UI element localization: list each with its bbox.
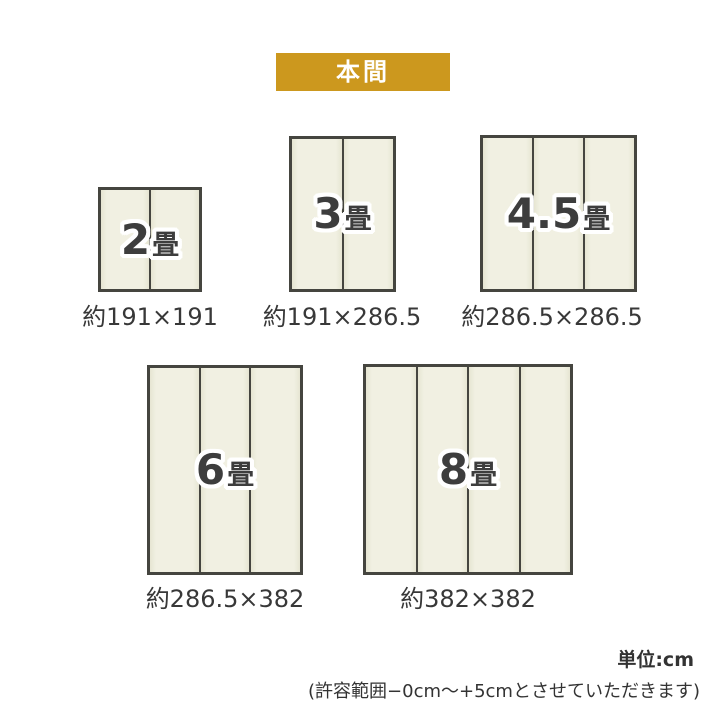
tatami-mat-6jo: 6畳: [147, 365, 303, 575]
dimension-label-3jo: 約191×286.5: [263, 304, 422, 330]
tatami-panel: [150, 368, 199, 572]
tatami-panel: [467, 367, 519, 572]
tatami-panel: [416, 367, 468, 572]
tatami-panels-6jo: [150, 368, 300, 572]
title-banner: 本間: [276, 53, 450, 91]
tatami-panel: [292, 139, 342, 289]
tatami-panels-2jo: [101, 190, 199, 289]
tatami-panel: [149, 190, 199, 289]
tatami-mat-8jo: 8畳: [363, 364, 573, 575]
tatami-mat-2jo: 2畳: [98, 187, 202, 292]
tatami-mat-4-5jo: 4.5畳: [480, 135, 637, 292]
dimension-label-8jo: 約382×382: [400, 586, 536, 612]
tatami-mat-3jo: 3畳: [289, 136, 396, 292]
tatami-panels-8jo: [366, 367, 570, 572]
tatami-panel: [366, 367, 416, 572]
dimension-label-2jo: 約191×191: [82, 304, 218, 330]
unit-note: 単位:cm: [617, 645, 694, 672]
size-chart: 本間 2畳 約191×191 3畳 約191×286.5 4.5畳 約286.5…: [0, 0, 720, 720]
tatami-panel: [249, 368, 300, 572]
tatami-panel: [101, 190, 149, 289]
tatami-panel: [483, 138, 532, 289]
tolerance-note: (許容範囲−0cm〜+5cmとさせていただきます): [308, 677, 700, 703]
tatami-panels-4-5jo: [483, 138, 634, 289]
tatami-panel: [519, 367, 571, 572]
tatami-panel: [583, 138, 634, 289]
dimension-label-4-5jo: 約286.5×286.5: [461, 304, 643, 330]
tatami-panel: [532, 138, 583, 289]
tatami-panel: [199, 368, 250, 572]
tatami-panel: [342, 139, 394, 289]
title-banner-label: 本間: [336, 60, 390, 84]
dimension-label-6jo: 約286.5×382: [146, 586, 305, 612]
tatami-panels-3jo: [292, 139, 393, 289]
